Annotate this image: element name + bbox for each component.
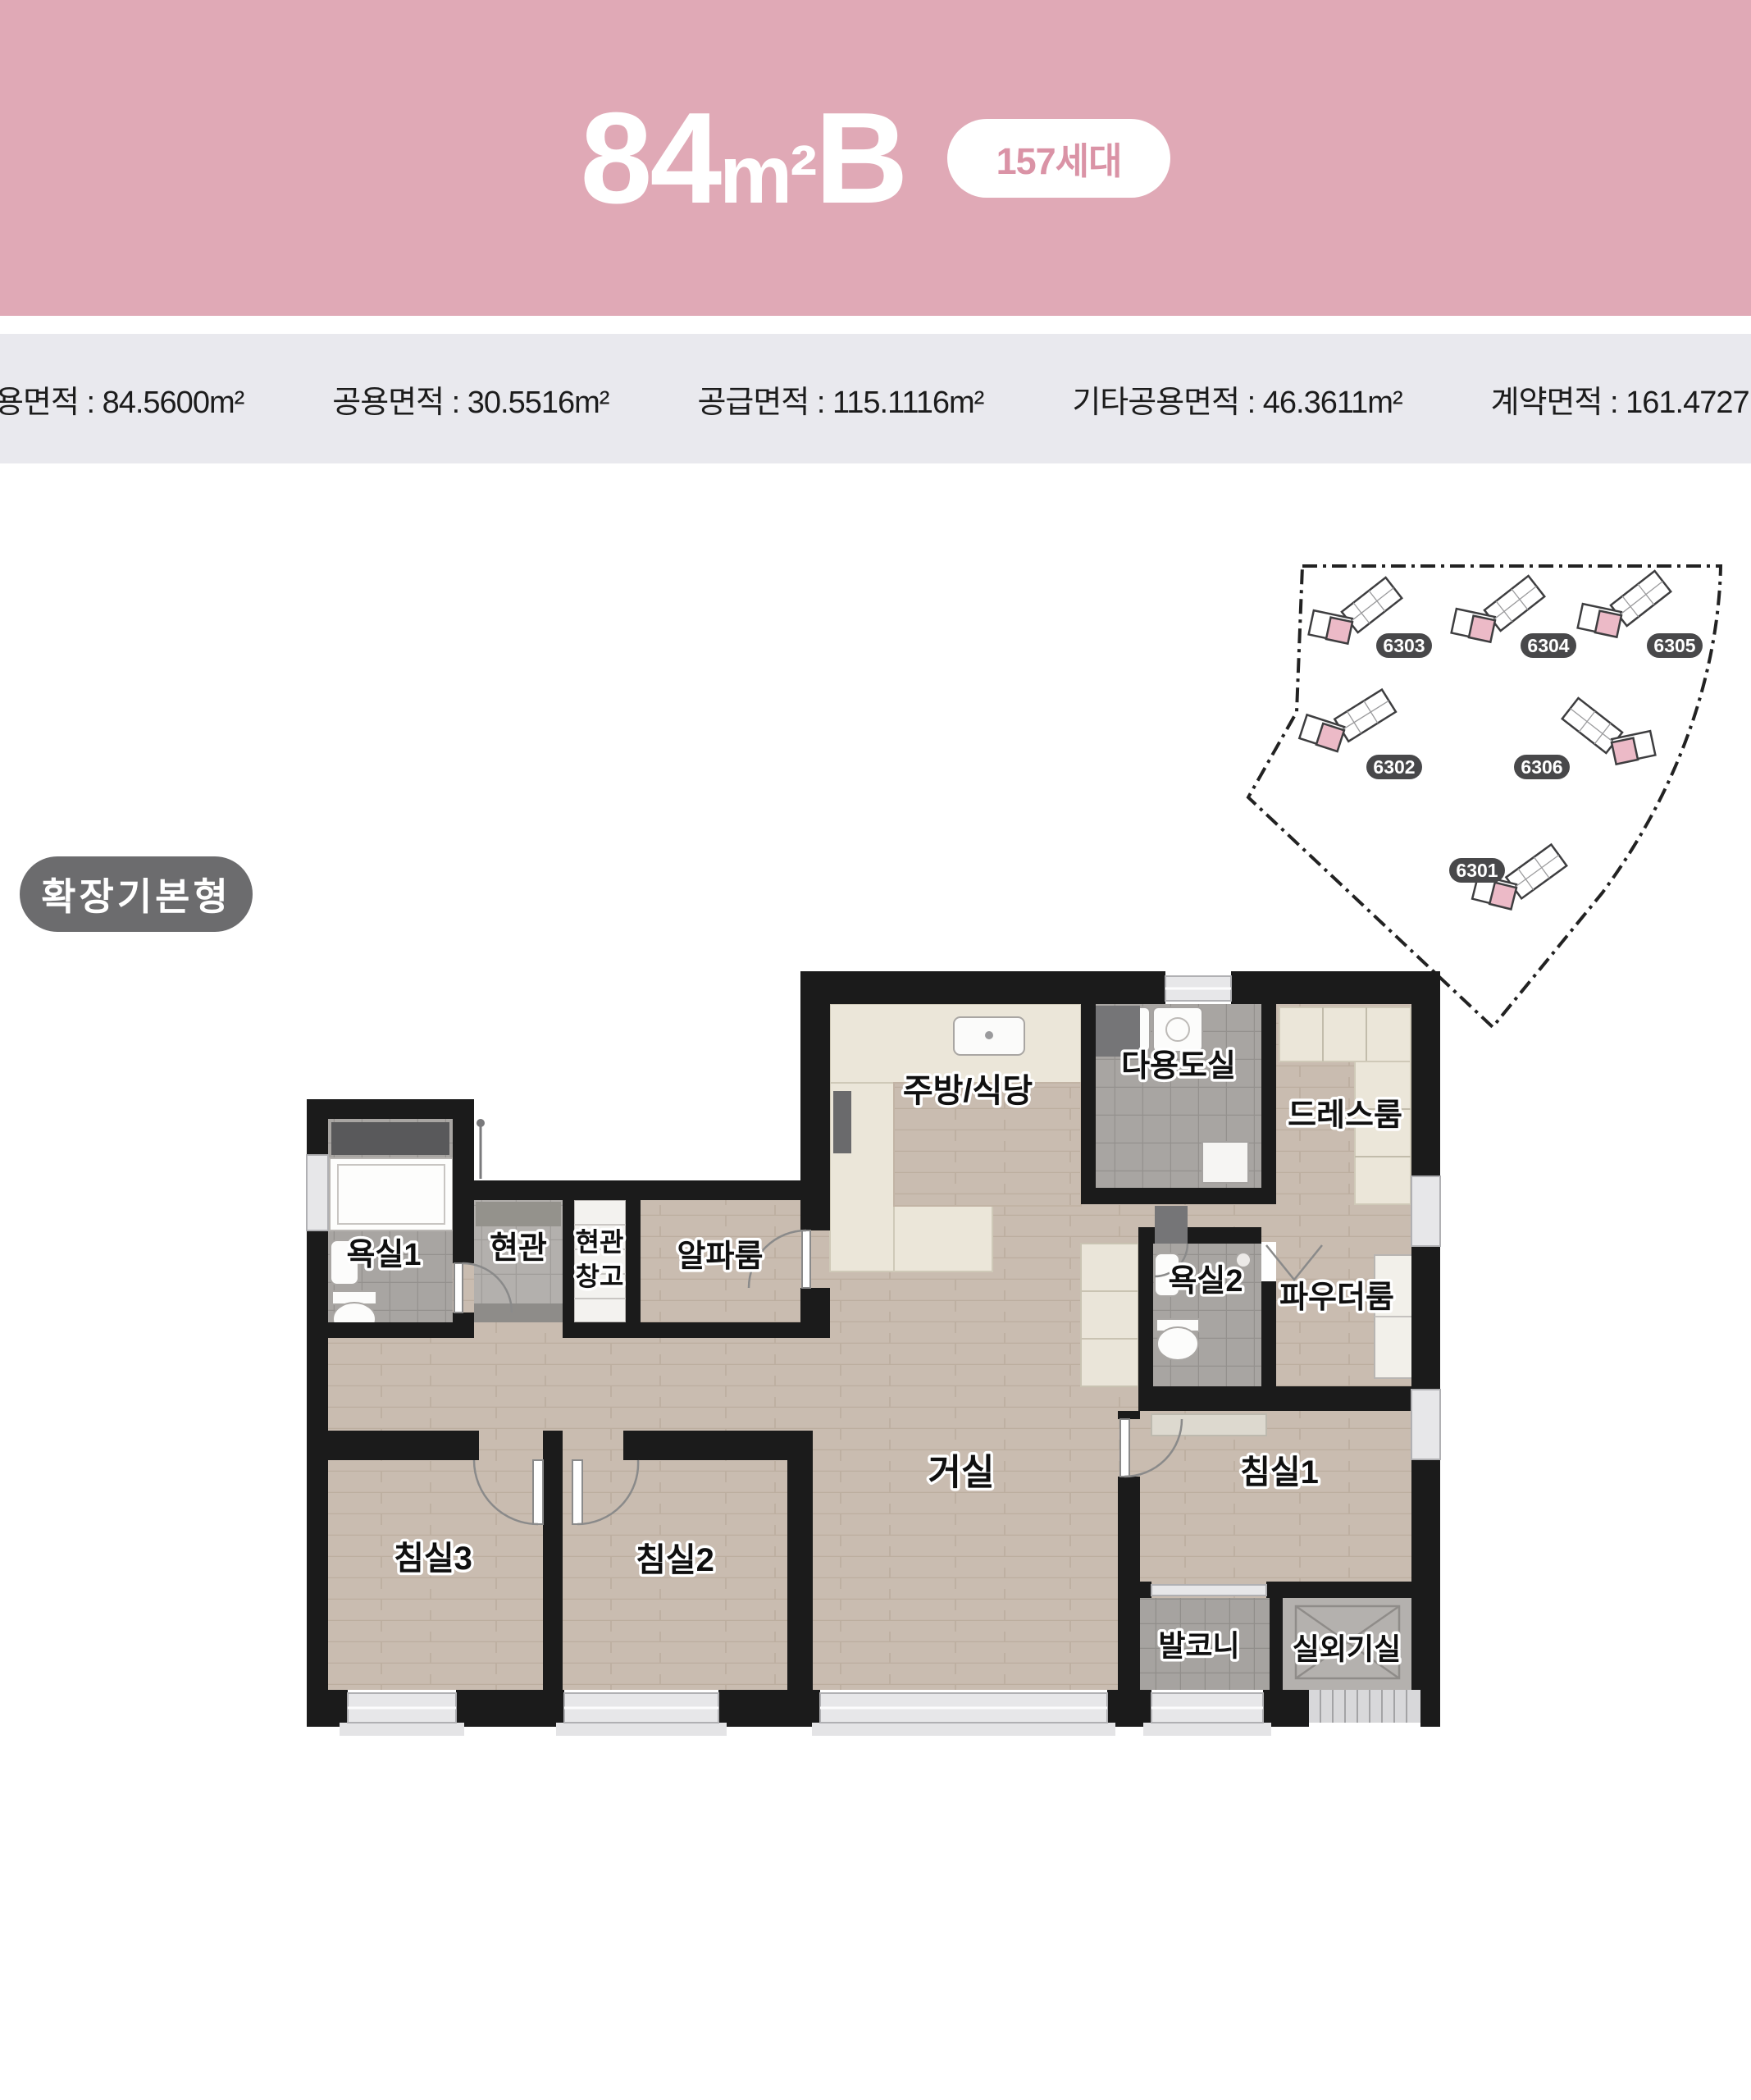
header: 84 m² B 157세대	[0, 0, 1751, 316]
room-label-alpha: 알파룸	[677, 1239, 764, 1274]
room-label-dressroom: 드레스룸	[1288, 1098, 1402, 1133]
room-label-kitchen: 주방/식당	[903, 1073, 1033, 1109]
unit-type-letter: B	[814, 94, 905, 223]
kitchen-counter-island	[894, 1206, 992, 1271]
room-label-entry: 현관	[490, 1231, 547, 1266]
window	[1411, 1176, 1440, 1246]
utility-sink-icon	[1202, 1142, 1248, 1183]
room-label-bathroom2: 욕실2	[1168, 1264, 1243, 1299]
window	[1411, 1390, 1440, 1459]
area-info-supply: 공급면적 : 115.1116m²	[653, 377, 1028, 422]
area-info-other-common: 기타공용면적 : 46.3611m²	[1028, 377, 1446, 422]
page: 84 m² B 157세대 전용면적 : 84.5600m² 공용면적 : 30…	[0, 0, 1751, 2100]
building-label: 6302	[1373, 756, 1415, 778]
floor-plan: 주방/식당 다용도실 드레스룸 욕실2 파우더룸 욕실1 현관 현관 창고 알파…	[295, 960, 1460, 1755]
building-label: 6301	[1456, 860, 1498, 881]
unit-type-number: 84	[581, 94, 720, 223]
site-building-6306: 6306	[1514, 698, 1655, 779]
site-building-6303: 6303	[1309, 577, 1432, 658]
window	[307, 1155, 328, 1230]
door-leaf	[1120, 1419, 1129, 1477]
area-info-contract: 계약면적 : 161.4727m²	[1447, 377, 1751, 422]
washer-icon	[1153, 1007, 1202, 1052]
room-label-bedroom3: 침실3	[394, 1541, 472, 1577]
room-label-powder: 파우더룸	[1279, 1281, 1394, 1315]
room-label-bedroom2: 침실2	[636, 1542, 714, 1578]
room-label-bathroom1: 욕실1	[346, 1238, 421, 1272]
building-label: 6303	[1383, 635, 1425, 656]
site-building-6301: 6301	[1449, 842, 1567, 911]
building-label: 6305	[1653, 635, 1695, 656]
area-info-bar: 전용면적 : 84.5600m² 공용면적 : 30.5516m² 공급면적 :…	[0, 334, 1751, 463]
bathtub-icon	[330, 1158, 453, 1230]
stove-icon	[833, 1091, 851, 1153]
toilet-icon	[1156, 1319, 1199, 1360]
area-info-common: 공용면적 : 30.5516m²	[288, 377, 653, 422]
dressroom-wardrobe-top	[1279, 1007, 1411, 1061]
bathroom2-door	[1155, 1206, 1188, 1244]
site-building-6304: 6304	[1452, 576, 1576, 658]
unit-type-unit: m²	[719, 134, 814, 216]
duct-shaft	[331, 1122, 449, 1155]
door-leaf	[454, 1263, 463, 1312]
room-label-utility: 다용도실	[1121, 1049, 1236, 1084]
bedroom1-closet	[1151, 1414, 1266, 1436]
building-label: 6306	[1521, 756, 1562, 778]
room-label-entry-storage-1: 현관	[576, 1227, 624, 1257]
room-label-living: 거실	[928, 1453, 995, 1493]
door-leaf	[802, 1230, 810, 1288]
household-count-badge: 157세대	[947, 119, 1171, 198]
site-building-6302: 6302	[1298, 682, 1422, 779]
unit-type-title: 84 m² B	[581, 94, 906, 223]
plan-type-pill: 확장기본형	[20, 856, 253, 932]
building-label: 6304	[1527, 635, 1569, 656]
room-label-balcony: 발코니	[1158, 1629, 1239, 1663]
louver-grill	[1309, 1690, 1420, 1723]
room-label-bedroom1: 침실1	[1240, 1454, 1319, 1491]
room-label-entry-storage-2: 창고	[576, 1262, 624, 1291]
dressroom-wardrobe-right	[1355, 1061, 1411, 1204]
room-label-outdoor-unit: 실외기실	[1293, 1632, 1401, 1666]
window	[1151, 1585, 1266, 1596]
door-leaf	[572, 1460, 582, 1524]
area-info-exclusive: 전용면적 : 84.5600m²	[0, 377, 288, 422]
site-building-6305: 6305	[1578, 571, 1703, 658]
door-leaf	[533, 1460, 543, 1524]
pantry-cabinet	[1081, 1244, 1138, 1386]
